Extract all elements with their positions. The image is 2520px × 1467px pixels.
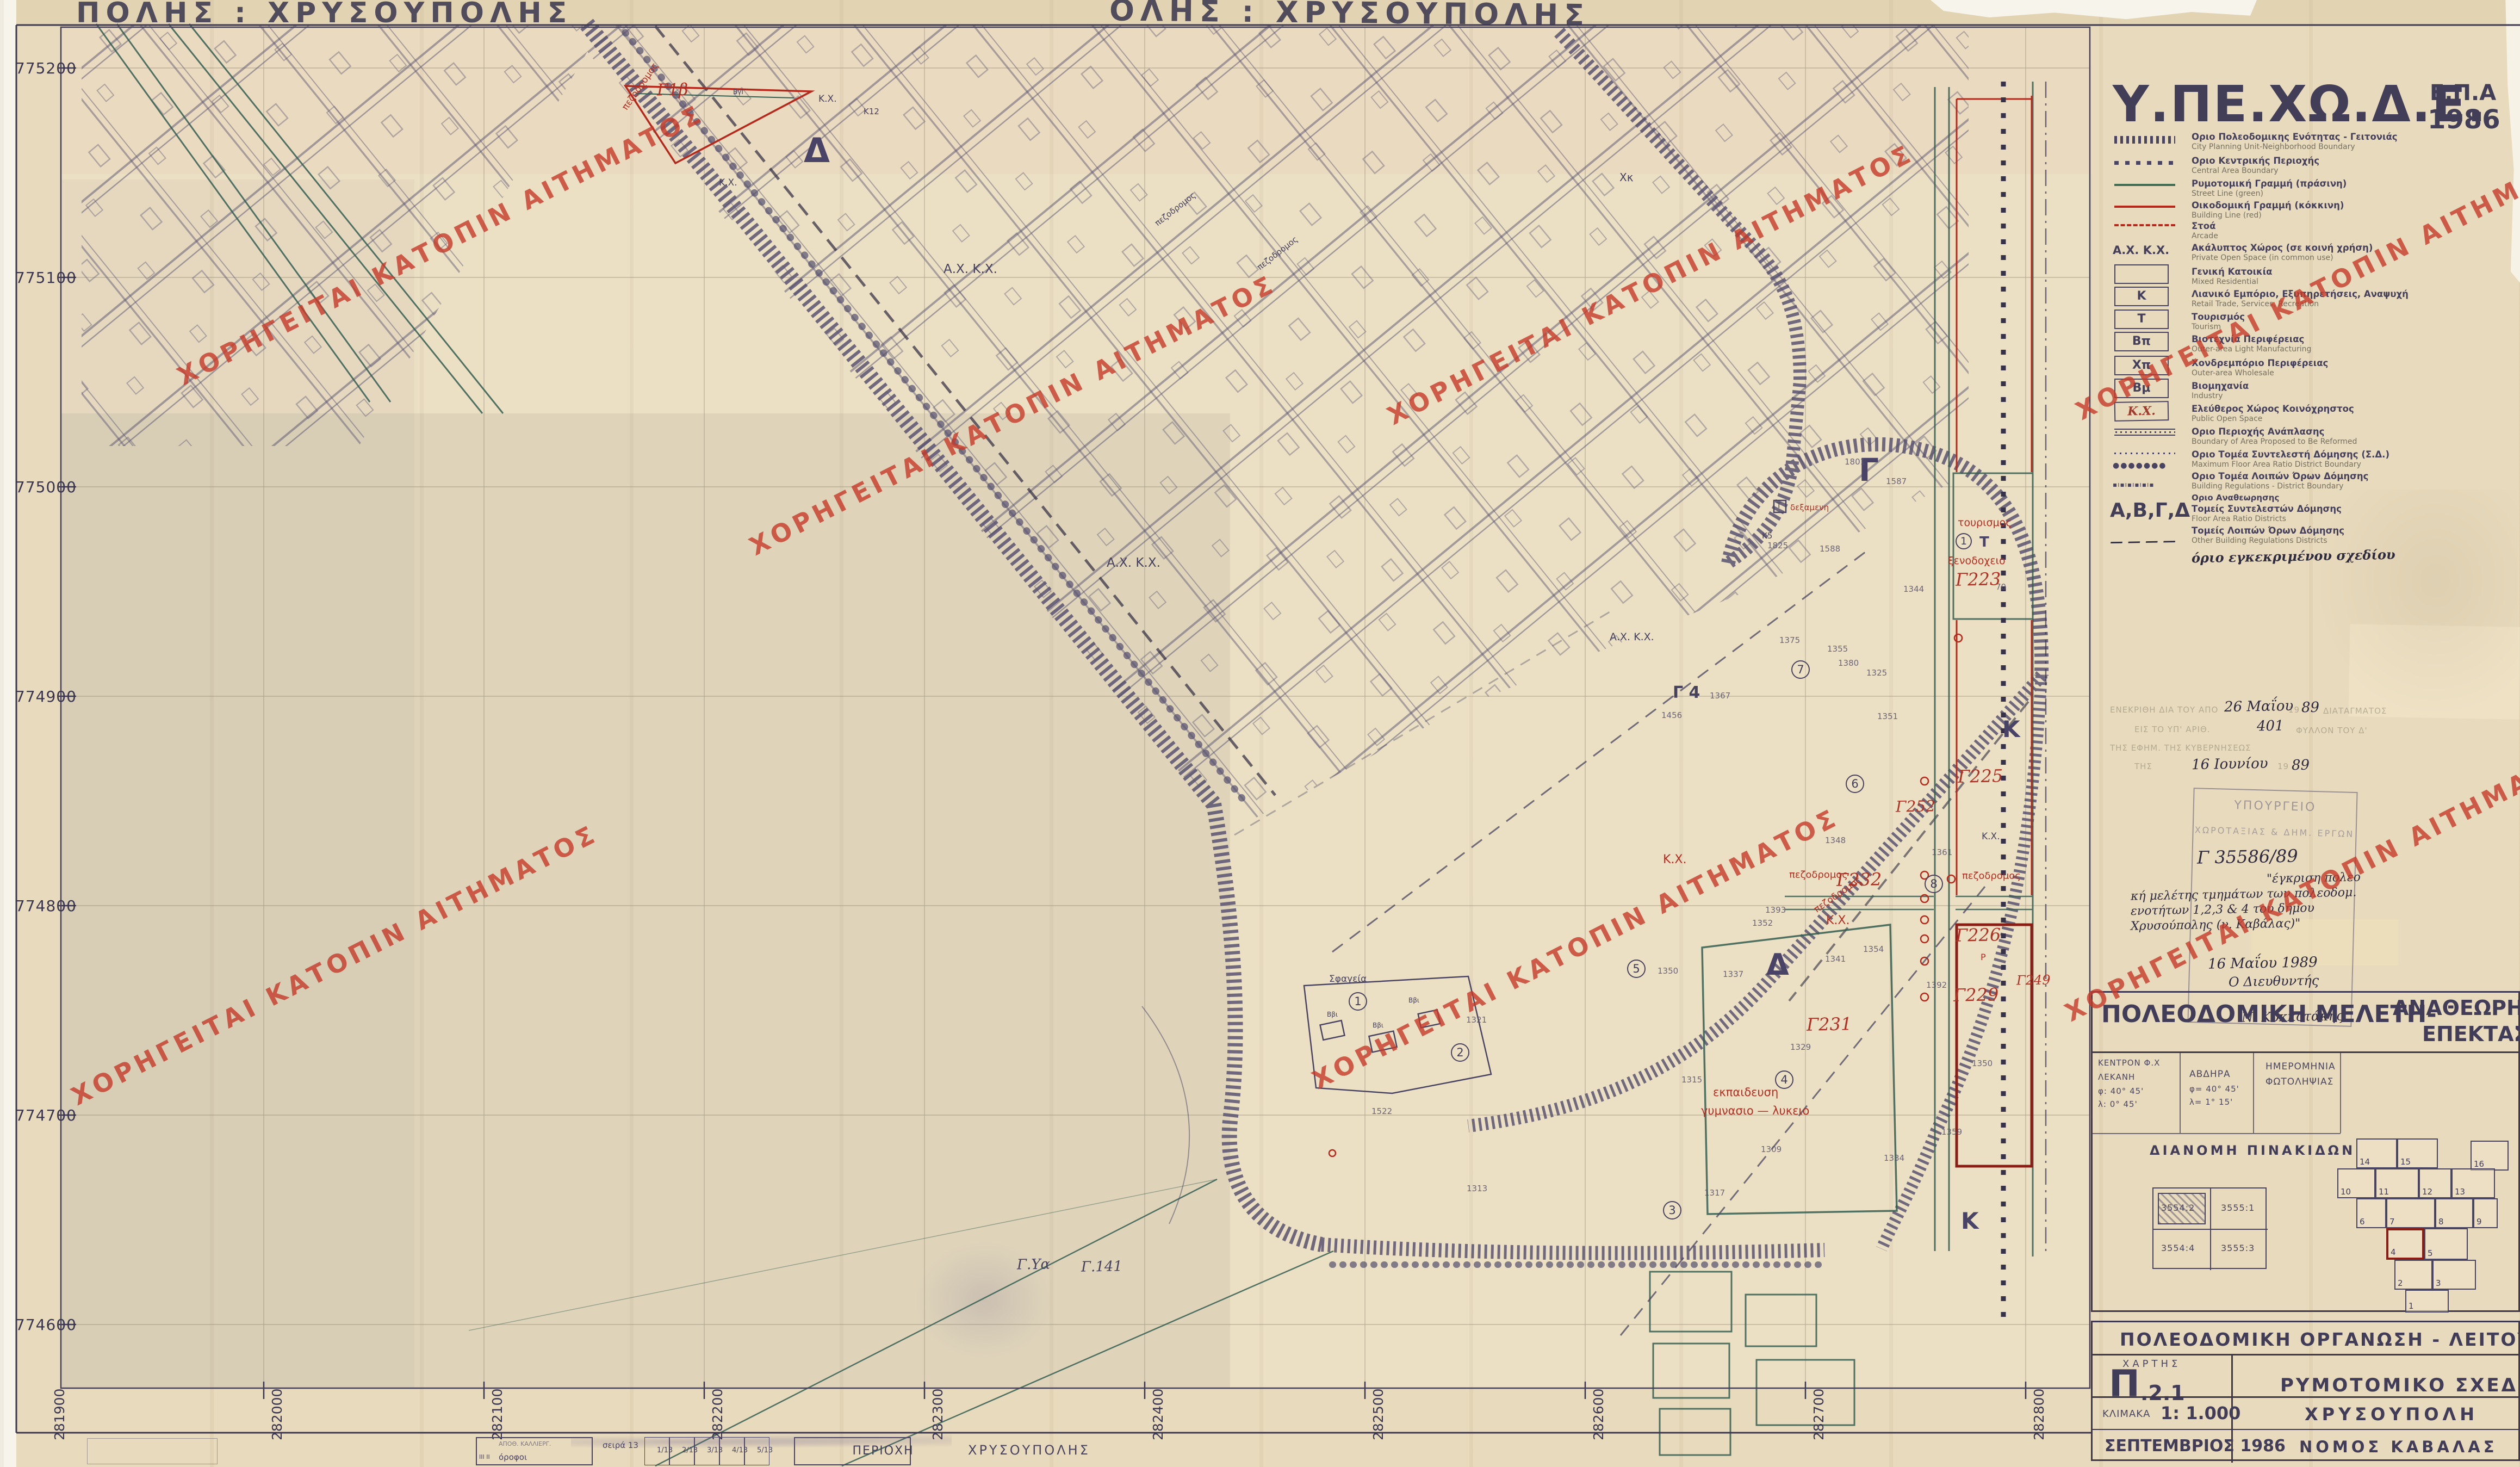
legend-symbol-building-line xyxy=(2114,206,2175,208)
legend-item-en: Outer-area Wholesale xyxy=(2192,369,2274,377)
tb-prefecture: ΝΟΜΟΣ ΚΑΒΑΛΑΣ xyxy=(2299,1438,2498,1456)
circled-2: 2 xyxy=(1451,1043,1469,1062)
legend-item: Στοά xyxy=(2192,221,2215,231)
strip-empty-box xyxy=(87,1438,218,1464)
stamp-typed-line: ΕΝΕΚΡΙΘΗ ΔΙΑ ΤΟΥ ΑΠΟ xyxy=(2110,705,2218,715)
circled-5: 5 xyxy=(1627,960,1646,978)
circled-7: 7 xyxy=(1791,660,1810,679)
legend-item-en: Boundary of Area Proposed to Be Reformed xyxy=(2192,437,2357,446)
label-kx-red-2: Κ.Χ. xyxy=(1826,914,1849,927)
stamp-director: Ο Διευθυντής xyxy=(2229,973,2319,990)
legend-item-en: Building Line (red) xyxy=(2192,211,2262,220)
legend-item-en: Mixed Residential xyxy=(2192,277,2258,286)
map-sheet: ΠΟΛΗΣ : ΧΡΥΣΟΥΠΟΛΗΣ ΟΛΗΣ : ΧΡΥΣΟΥΠΟΛΗΣ 7… xyxy=(0,0,2520,1467)
legend-item: Οριο Τομέα Λοιπών Όρων Δόμησης xyxy=(2192,471,2368,481)
label-k5: Κ5 xyxy=(1762,531,1772,541)
block-g249: Γ249 xyxy=(2016,972,2051,988)
parcel: 1393 xyxy=(1765,905,1786,915)
district-letter-delta-2: Δ xyxy=(1766,948,1789,982)
label-xenodocheio: ξενοδοχειο xyxy=(1948,555,2006,567)
strip-periochi-box: ΠΕΡΙΟΧΗ xyxy=(794,1437,911,1465)
y-axis-774900: 774900 xyxy=(15,688,58,705)
tile-10: 10 xyxy=(2337,1168,2375,1198)
stamp-typed-fyllon: ΦΥΛΛΟΝ ΤΟΥ Δ' xyxy=(2296,726,2368,735)
titleblock-row1: ΠΟΛΕΟΔΟΜΙΚΗ ΟΡΓΑΝΩΣΗ - ΛΕΙΤΟΥΡΓΙΕΣ xyxy=(2120,1329,2520,1350)
parcel: 1825 xyxy=(1767,541,1788,550)
block-g225: Γ225 xyxy=(1958,765,2003,787)
parcel: 1380 xyxy=(1838,658,1859,668)
legend-item: Τομείς Λοιπών Όρων Δόμησης xyxy=(2192,525,2344,536)
epa-year: 1986 xyxy=(2428,104,2500,135)
tb-klimaka: ΚΛΙΜΑΚΑ xyxy=(2102,1408,2150,1420)
legend-item: Ελεύθερος Χώρος Κοινόχρηστος xyxy=(2192,404,2354,414)
legend-symbol-sd xyxy=(2114,453,2175,454)
legend-item-en: City Planning Unit-Neighborhood Boundary xyxy=(2192,143,2355,151)
label-ekpaideusi: εκπαιδευση xyxy=(1713,1086,1778,1099)
panel-kentron: ΚΕΝΤΡΟΝ Φ.Χ xyxy=(2098,1058,2160,1068)
tile-13: 13 xyxy=(2451,1168,2495,1198)
tile-6: 6 xyxy=(2356,1198,2386,1228)
panel-imerominia: ΗΜΕΡΟΜΗΝΙΑ xyxy=(2265,1061,2336,1072)
stamp-handwritten-date: 26 Μαΐου xyxy=(2224,698,2294,715)
panel-l1: λ: 0° 45' xyxy=(2098,1099,2138,1109)
legend-item-en: Private Open Space (in common use) xyxy=(2192,253,2333,262)
strip-poli: ΧΡΥΣΟΥΠΟΛΗΣ xyxy=(968,1443,1090,1458)
parcel: 1315 xyxy=(1681,1075,1702,1085)
legend-symbol-dashdot: ▪ı▪ı▪ı▪ı▪ı▪ xyxy=(2113,481,2154,488)
parcel: 1341 xyxy=(1825,954,1846,964)
legend-box-bp: Βπ xyxy=(2114,332,2169,351)
tb-scale: 1: 1.000 xyxy=(2161,1403,2240,1423)
parcel: 1350 xyxy=(1972,1059,1993,1068)
x-axis-282000: 282000 xyxy=(269,1389,285,1440)
district-letter-kappa-2: Κ xyxy=(1961,1208,1979,1234)
y-axis-774800: 774800 xyxy=(15,897,58,915)
sheet-3554-2: 3554:2 xyxy=(2161,1203,2195,1213)
legend-item: Γενική Κατοικία xyxy=(2192,267,2272,277)
panel-dianomi: ΔΙΑΝΟΜΗ ΠΙΝΑΚΙΔΩΝ xyxy=(2150,1143,2355,1158)
tb-code-rest: .2.1 xyxy=(2140,1381,2185,1405)
stamp-box-line2: ΧΩΡΟΤΑΞΙΑΣ & ΔΗΜ. ΕΡΓΩΝ xyxy=(2193,825,2355,839)
x-axis-282100: 282100 xyxy=(489,1389,505,1440)
district-letter-delta-1: Δ xyxy=(804,131,830,170)
parcel: 1354 xyxy=(1863,944,1884,954)
stamp-approval-date: 16 Μαΐου 1989 xyxy=(2208,954,2318,973)
legend-item: Ρυμοτομική Γραμμή (πράσινη) xyxy=(2192,178,2347,189)
label-gya: Γ.Υα xyxy=(1017,1256,1051,1273)
tile-3: 3 xyxy=(2432,1260,2476,1290)
label-axkx-3: Α.Χ. Κ.Χ. xyxy=(1610,631,1654,643)
stencil-city-left: ΠΟΛΗΣ : ΧΡΥΣΟΥΠΟΛΗΣ xyxy=(76,0,573,29)
parcel: 1522 xyxy=(1371,1106,1392,1116)
legend-symbol-central-boundary xyxy=(2114,161,2175,165)
parcel: 1309 xyxy=(1761,1144,1782,1154)
x-axis-281900: 281900 xyxy=(52,1389,67,1440)
panel-fotolipsias: ΦΩΤΟΛΗΨΙΑΣ xyxy=(2265,1076,2333,1087)
block-g252: Γ252 xyxy=(1896,797,1935,815)
label-g4: Γ 4 xyxy=(1673,683,1700,702)
y-axis-775000: 775000 xyxy=(15,478,58,496)
tile-4-highlighted: 4 xyxy=(2386,1228,2424,1260)
legend-box-k: Κ xyxy=(2114,287,2169,306)
parcel: 1456 xyxy=(1661,710,1682,720)
parcel: 1392 xyxy=(1926,980,1947,990)
label-kx-dark-1: Κ.Χ. xyxy=(818,94,837,104)
legend-symbol-axkx: Α.Χ. Κ.Χ. xyxy=(2113,244,2169,257)
label-k12: Κ12 xyxy=(864,107,879,116)
label-pezodromos-3: πεζοδρομος xyxy=(1962,870,2021,882)
strip-apoth: ΑΠΟΘ. ΚΑΛΛΙΕΡΓ. xyxy=(499,1440,551,1447)
legend-symbol-arcade xyxy=(2114,224,2175,226)
tile-7: 7 xyxy=(2386,1198,2435,1228)
parcel: 1361 xyxy=(1932,847,1952,857)
stamp-typed-tis: ΤΗΣ xyxy=(2134,762,2152,771)
panel-f2: φ= 40° 45' xyxy=(2189,1084,2239,1094)
stamp-handwritten-date2: 16 Ιουνίου xyxy=(2192,756,2268,773)
parcel: 1344 xyxy=(1903,584,1924,594)
parcel: 1325 xyxy=(1866,668,1887,678)
stamp-protocol-number: Γ 35586/89 xyxy=(2197,845,2298,868)
tile-12: 12 xyxy=(2419,1168,2451,1198)
stamp-typed-line3: ΤΗΣ ΕΦΗΜ. ΤΗΣ ΚΥΒΕΡΝΗΣΕΩΣ xyxy=(2110,743,2251,753)
block-g226: Γ226 xyxy=(1956,924,2001,945)
legend-item: Οριο Κεντρικής Περιοχής xyxy=(2192,156,2319,166)
legend-item-en: Street Line (green) xyxy=(2192,189,2263,198)
tile-15: 15 xyxy=(2397,1138,2438,1168)
parcel: 1351 xyxy=(1877,711,1898,721)
parcel: 1337 xyxy=(1723,969,1743,979)
circled-6: 6 xyxy=(1846,775,1864,793)
stencil-city-center: ΟΛΗΣ : ΧΡΥΣΟΥΠΟΛΗΣ xyxy=(1109,0,1591,33)
strip-cell-3: 3/13 xyxy=(694,1437,719,1465)
label-axkx-2: Α.Χ. Κ.Χ. xyxy=(1107,556,1160,570)
tile-1: 1 xyxy=(2405,1290,2449,1313)
stamp-handwritten-89b: 89 xyxy=(2292,757,2310,774)
strip-seira: σειρά 13 xyxy=(603,1440,638,1450)
legend-item: Οριο Τομέα Συντελεστή Δόμησης (Σ.Δ.) xyxy=(2192,449,2389,460)
legend-symbol-abgd: Α,Β,Γ,Δ xyxy=(2110,499,2190,522)
tile-5: 5 xyxy=(2424,1228,2468,1260)
sheet-grid: 3554:2 3555:1 3554:4 3555:3 xyxy=(2152,1187,2267,1269)
label-kx-red-1: Κ.Χ. xyxy=(1663,853,1686,866)
sheet-grid-hline xyxy=(2153,1229,2268,1230)
circled-8: 8 xyxy=(1925,875,1943,893)
label-bbi-2: Ββι xyxy=(1373,1022,1383,1029)
label-sfageia: Σφαγεία xyxy=(1329,974,1367,985)
y-axis-774700: 774700 xyxy=(15,1106,58,1124)
label-kx-dark-3: Κ.Χ. xyxy=(1982,831,2000,842)
stamp-typed-diatagmatos: ΔΙΑΤΑΓΜΑΤΟΣ xyxy=(2323,706,2387,716)
legend-item-en: Public Open Space xyxy=(2192,414,2262,423)
y-axis-775100: 775100 xyxy=(15,269,58,287)
x-axis-282200: 282200 xyxy=(710,1389,725,1440)
tile-14: 14 xyxy=(2356,1138,2397,1168)
x-axis-282800: 282800 xyxy=(2031,1389,2047,1440)
tile-2: 2 xyxy=(2394,1260,2432,1290)
parcel: 1587 xyxy=(1886,476,1907,486)
panel-divider-v2 xyxy=(2253,1051,2254,1133)
label-bbi-3: Ββι xyxy=(1408,996,1419,1004)
tourism-letter-t: Τ xyxy=(1979,534,1989,550)
street-grid xyxy=(61,24,2090,895)
legend-item: Οριο Αναθεωρησης xyxy=(2192,493,2279,503)
panel-avdira: ΑΒΔΗΡΑ xyxy=(2189,1069,2231,1080)
circled-1-tourism: 1 xyxy=(1956,533,1972,549)
epa-label: Ε.Π.Α xyxy=(2430,81,2496,106)
tile-11: 11 xyxy=(2375,1168,2419,1198)
legend-symbol-unit-boundary xyxy=(2114,136,2175,144)
tb-h3 xyxy=(2093,1429,2520,1430)
legend-item-en: Industry xyxy=(2192,392,2223,400)
label-xk: Χκ xyxy=(1619,171,1634,184)
panel-divider-h1 xyxy=(2093,1051,2520,1053)
legend-symbol-big-dots: ●●●●●●● xyxy=(2113,461,2167,470)
legend-item-en: Building Regulations - District Boundary xyxy=(2192,482,2343,491)
study-title-3: ΕΠΕΚΤΑΣΗ xyxy=(2422,1022,2520,1046)
parcel: 1348 xyxy=(1825,835,1846,845)
tile-8: 8 xyxy=(2435,1198,2473,1228)
stamp-typed-19: 19 xyxy=(2288,705,2300,715)
parcel: 1329 xyxy=(1790,1042,1811,1052)
label-pezodromos-2: πεζοδρομος xyxy=(1789,869,1848,881)
legend-item: Οικοδομική Γραμμή (κόκκινη) xyxy=(2192,200,2344,211)
parcel: 1375 xyxy=(1779,635,1800,645)
panel-f1: φ: 40° 45' xyxy=(2098,1086,2144,1096)
label-bbi-1: Ββι xyxy=(1327,1011,1338,1018)
panel-l2: λ= 1° 15' xyxy=(2189,1097,2233,1107)
parcel: 1367 xyxy=(1710,691,1730,701)
legend-item-en: Floor Area Ratio Districts xyxy=(2192,515,2286,523)
stamp-handwritten-89: 89 xyxy=(2301,700,2320,716)
study-title-2: ΑΝΑΘΕΩΡΗΣΗ xyxy=(2393,996,2520,1020)
legend-item: Ακάλυπτος Χώρος (σε κοινή χρήση) xyxy=(2192,243,2373,253)
parcel: 1313 xyxy=(1467,1184,1487,1193)
x-axis-282700: 282700 xyxy=(1811,1389,1827,1440)
study-panel: ΠΟΛΕΟΔΟΜΙΚΗ ΜΕΛΕΤΗ- ΑΝΑΘΕΩΡΗΣΗ ΕΠΕΚΤΑΣΗ … xyxy=(2091,991,2520,1312)
block-g1b: Γ1β xyxy=(657,81,688,100)
legend-box-t: Τ xyxy=(2114,310,2169,329)
tb-h2 xyxy=(2093,1396,2520,1398)
legend-item: Τομείς Συντελεστών Δόμησης xyxy=(2192,504,2342,514)
label-tourismos: τουρισμος xyxy=(1958,517,2012,529)
x-axis-282400: 282400 xyxy=(1150,1389,1166,1440)
strip-cell-1: 1/13 xyxy=(644,1437,669,1465)
tb-date: ΣΕΠΤΕΜΒΡΙΟΣ 1986 xyxy=(2105,1437,2286,1456)
label-p-small: Ρ xyxy=(1981,952,1986,962)
strip-cell-4: 4/13 xyxy=(719,1437,744,1465)
tb-city: ΧΡΥΣΟΥΠΟΛΗ xyxy=(2305,1404,2478,1425)
parcel: 1801 xyxy=(1845,457,1865,467)
tb-drawing: ΡΥΜΟΤΟΜΙΚΟ ΣΧΕΔΙΟ xyxy=(2280,1375,2520,1396)
strip-marks: ΙΙΙ ΙΙ xyxy=(479,1453,490,1460)
parcel: 1588 xyxy=(1820,544,1840,554)
block-g229: Γ229 xyxy=(1953,984,1999,1005)
stamp-typed-line2: ΕΙΣ ΤΟ ΥΠ' ΑΡΙΘ. xyxy=(2134,725,2211,734)
stamp-handwritten-401: 401 xyxy=(2257,718,2284,735)
legend-item-en: Maximum Floor Area Ratio District Bounda… xyxy=(2192,460,2361,469)
tile-9: 9 xyxy=(2473,1198,2498,1228)
parcel: 70 xyxy=(1996,582,2006,592)
sheet-3555-1: 3555:1 xyxy=(2221,1203,2255,1213)
tb-h1 xyxy=(2093,1354,2520,1355)
legend-symbol-anaplasi xyxy=(2114,429,2175,436)
tb-code-pi: Π xyxy=(2109,1363,2140,1406)
dexameni-letter-t: Τ xyxy=(1777,502,1782,510)
strip-cell-2: 2/13 xyxy=(669,1437,694,1465)
x-axis-282600: 282600 xyxy=(1591,1389,1606,1440)
panel-lekani: ΛΕΚΑΝΗ xyxy=(2098,1072,2135,1082)
district-letter-kappa-1: Κ xyxy=(2002,716,2020,742)
study-title-1: ΠΟΛΕΟΔΟΜΙΚΗ ΜΕΛΕΤΗ- xyxy=(2101,1000,2437,1028)
x-axis-282500: 282500 xyxy=(1370,1389,1386,1440)
label-g141: Γ.141 xyxy=(1081,1258,1122,1275)
parcel: 1355 xyxy=(1827,644,1848,654)
stamp-typed-19b: 19 xyxy=(2277,762,2289,771)
legend-symbol-approved-dashes: — — — — xyxy=(2110,533,2176,549)
legend-item-en: Central Area Boundary xyxy=(2192,166,2279,175)
block-g223: Γ223 xyxy=(1956,568,2001,590)
sheet-3554-4: 3554:4 xyxy=(2161,1243,2195,1253)
legend-item-en: Arcade xyxy=(2192,232,2218,240)
strip-cell-5: 5/13 xyxy=(744,1437,769,1465)
panel-divider-v1 xyxy=(2180,1051,2181,1133)
parcel: 1334 xyxy=(1884,1153,1904,1163)
tile-16: 16 xyxy=(2471,1141,2509,1171)
legend-symbol-street-line xyxy=(2114,184,2175,186)
panel-divider-v3 xyxy=(2340,1051,2341,1133)
parcel: 1359 xyxy=(1941,1127,1962,1137)
label-gymnasio: γυμνασιο — λυκειο xyxy=(1701,1104,1809,1117)
revision-boundary-lines xyxy=(2003,82,2046,1327)
parcel: 1352 xyxy=(1752,918,1773,928)
sheet-3555-3: 3555:3 xyxy=(2221,1243,2255,1253)
panel-divider-h2 xyxy=(2093,1133,2341,1134)
legend-item: Βιομηχανία xyxy=(2192,381,2249,391)
parcel: 1350 xyxy=(1658,966,1678,976)
y-axis-775200: 775200 xyxy=(15,59,58,77)
legend-item: Οριο Πολεοδομικης Ενότητας - Γειτονιάς xyxy=(2192,132,2398,142)
parcel: 1317 xyxy=(1704,1188,1725,1198)
title-block: ΠΟΛΕΟΔΟΜΙΚΗ ΟΡΓΑΝΩΣΗ - ΛΕΙΤΟΥΡΓΙΕΣ ΧΑΡΤΗ… xyxy=(2091,1321,2520,1461)
legend-box-residential xyxy=(2114,264,2169,284)
y-axis-774600: 774600 xyxy=(15,1316,58,1334)
stamp-box-line1: ΥΠΟΥΡΓΕΙΟ xyxy=(2194,797,2357,815)
legend-item: Οριο Περιοχής Ανάπλασης xyxy=(2192,426,2324,437)
circled-1: 1 xyxy=(1349,992,1367,1011)
label-dexameni: δεξαμενη xyxy=(1790,503,1829,512)
strip-orofoi: όροφοι xyxy=(499,1452,527,1462)
label-kx-dark-2: Κ.Χ. xyxy=(719,177,737,188)
label-bgi: ΒγΙ xyxy=(733,88,743,96)
legend-item-en: Other Building Regulations Districts xyxy=(2192,536,2327,545)
strip-apoth-box: ΙΙΙ ΙΙ ΑΠΟΘ. ΚΑΛΛΙΕΡΓ. όροφοι xyxy=(476,1437,593,1465)
x-axis-282300: 282300 xyxy=(930,1389,946,1440)
block-g231: Γ231 xyxy=(1807,1013,1852,1035)
label-axkx-1: Α.Χ. Κ.Χ. xyxy=(944,262,997,276)
circled-3: 3 xyxy=(1663,1201,1681,1220)
